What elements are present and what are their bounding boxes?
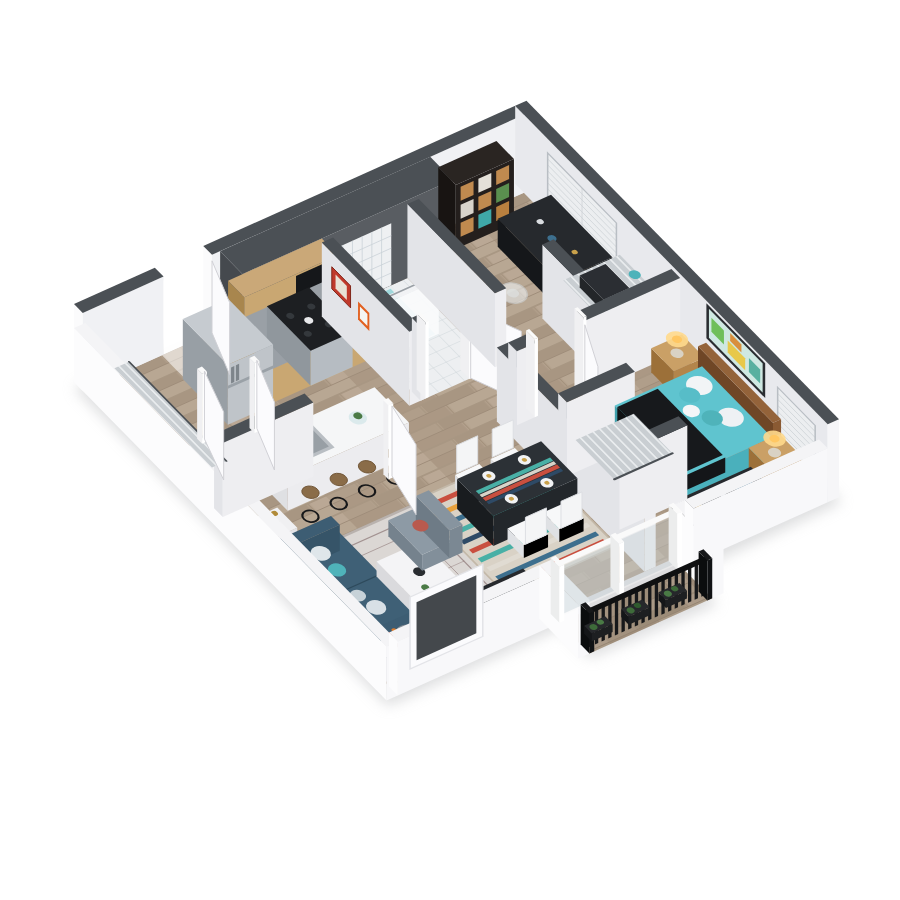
floor-plan-stage: 3D isometric floor plan of a one-bedroom… (0, 0, 900, 900)
floor-plan-svg (0, 0, 900, 900)
